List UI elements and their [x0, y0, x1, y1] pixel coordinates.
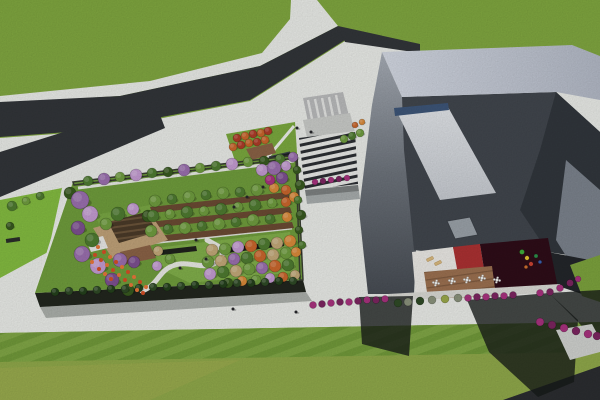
grain-overlay: [0, 0, 600, 400]
render-stage: [0, 0, 600, 400]
scene-svg: [0, 0, 600, 400]
